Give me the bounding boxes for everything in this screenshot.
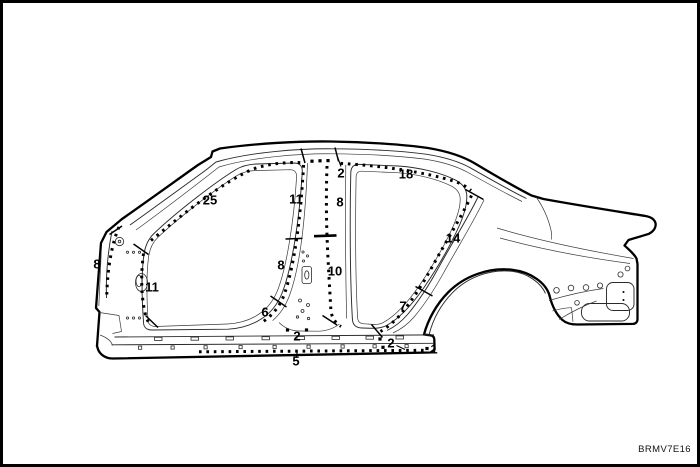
weld-line-25 xyxy=(151,163,301,241)
callout-2-b-pillar-base: 2 xyxy=(293,330,300,343)
figure-code: BRMV7E16 xyxy=(638,444,691,455)
callout-11-a-pillar-inner: 11 xyxy=(145,281,159,294)
callout-25-front-roof-rail: 25 xyxy=(203,194,217,207)
callout-6-door-corner: 6 xyxy=(261,306,268,319)
callout-1-sill-end: 1 xyxy=(430,343,437,356)
weld-line-b-pillar-front xyxy=(262,165,304,322)
callout-2-roof-rail: 2 xyxy=(337,167,344,180)
rear-door-aperture xyxy=(350,164,467,328)
callout-7-quarter-lower: 7 xyxy=(399,300,406,313)
callout-8-a-pillar: 8 xyxy=(93,258,100,271)
callout-18-rear-roof-rail: 18 xyxy=(399,168,413,181)
rear-wheel-arch xyxy=(424,269,550,334)
weld-line-5-rocker xyxy=(199,350,424,352)
tail-lamp-pocket xyxy=(607,283,635,311)
callout-8-b-pillar-lower: 8 xyxy=(277,259,284,272)
car-body-side-diagram xyxy=(0,0,700,467)
callout-8-b-pillar-rear: 8 xyxy=(336,196,343,209)
sill-holes xyxy=(139,345,409,350)
callout-2-quarter-sill: 2 xyxy=(387,337,394,350)
callout-14-c-pillar: 14 xyxy=(446,232,460,245)
weld-line-14-7 xyxy=(381,196,472,332)
figure-canvas: 2511218814811810627215 BRMV7E16 xyxy=(0,0,700,467)
rear-panel-slot xyxy=(582,304,630,322)
callout-10-b-pillar-lower: 10 xyxy=(328,265,342,278)
weld-line-8-a-pillar xyxy=(107,227,119,295)
callout-5-rocker-panel: 5 xyxy=(292,355,299,368)
callout-11-b-pillar-front: 11 xyxy=(289,193,303,206)
weld-line-b-pillar-rear xyxy=(326,166,341,327)
